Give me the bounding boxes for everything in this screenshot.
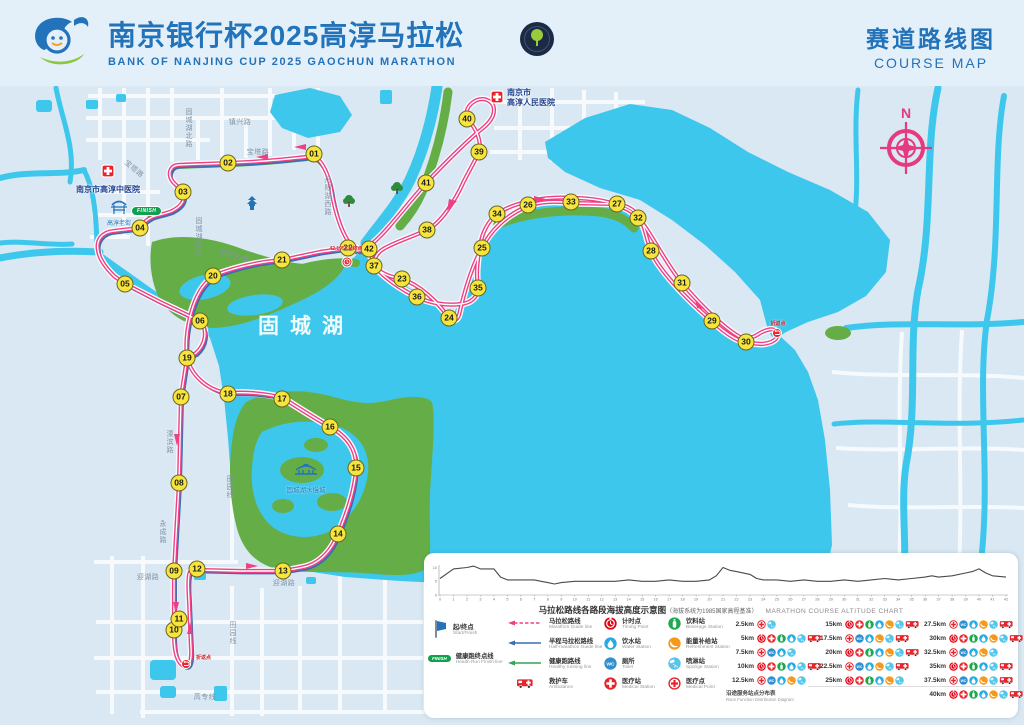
toilet-icon: WC [855,662,864,671]
svg-text:WC: WC [857,636,863,640]
beverage-icon [668,617,681,630]
medical-icon [855,676,864,685]
station-row-32.5km: 32.5kmWC [910,645,1023,659]
course-map-title-cn: 赛道路线图 [866,20,996,54]
medical-icon [767,662,776,671]
sponge-icon [999,634,1008,643]
legend-item-water: 饮水站Water Station [604,633,655,653]
legend-item-medicalpoint: 医疗点Medical Point [668,673,730,693]
refreshment-icon [668,637,681,650]
station-row-12.5km: 12.5kmWC [724,673,821,687]
health-line-swatch [507,659,543,667]
svg-text:WC: WC [961,622,967,626]
water-icon [777,676,786,685]
station-row-40km: 40km [910,687,1023,701]
medical-icon [855,620,864,629]
marathon-line-swatch [507,619,543,627]
half-line-swatch [507,639,543,647]
water-icon [979,634,988,643]
medicalpoint-icon [845,634,854,643]
beverage-icon [969,690,978,699]
old-street-label: 高淳老街 [96,218,142,227]
health-run-finish-pill: FINISH [131,206,162,216]
health-finish-label-en: Health Run Finish line [456,660,503,665]
toilet-icon: WC [959,648,968,657]
water-icon [969,676,978,685]
sponge-icon [999,690,1008,699]
water-icon [875,676,884,685]
compass-icon: N [880,105,932,174]
medical-icon [855,648,864,657]
legend-item-beverage: 饮料站Beverage Station [668,613,730,633]
medicalpoint-icon [949,620,958,629]
event-logo-icon [26,10,104,70]
hospital-cross-icon [102,165,114,177]
water-icon [787,662,796,671]
ambulance-icon [999,662,1013,671]
turnaround-icon [182,660,191,669]
legend-health-finish: FINISH 健康跑终点线 Health Run Finish line [428,651,503,665]
archway-icon [111,202,127,215]
legend-line-ambulance: 救护车Ambulance [506,673,602,693]
sponge-icon [989,676,998,685]
ambulance-icon [999,676,1013,685]
sponge-icon [885,634,894,643]
header: 南京银行杯2025高淳马拉松 BANK OF NANJING CUP 2025 … [0,0,1024,86]
turnaround-label-east: 折返点 [753,320,803,327]
station-row-27.5km: 27.5kmWC [910,617,1023,631]
station-divider [808,686,1010,687]
refreshment-icon [885,676,894,685]
station-note-en: Race Function Distribution Diagram [726,697,794,702]
toilet-icon: WC [604,657,617,670]
finish-timing-icon [342,257,352,267]
lake-name-label: 固城湖 [258,310,354,340]
medical-icon [604,677,617,690]
legend-icons-col1: 计时点Timing Point饮水站Water StationWC厕所Toile… [604,613,655,693]
refreshment-icon [979,620,988,629]
water-icon [787,634,796,643]
toilet-icon: WC [767,648,776,657]
sponge-icon [989,648,998,657]
svg-text:WC: WC [769,650,775,654]
water-icon [969,620,978,629]
course-map-title-en: COURSE MAP [866,55,996,71]
ambulance-icon [999,620,1013,629]
course-map-poster: N 01020304050607080910111213141516171819… [0,0,1024,725]
legend-line-marathon: 马拉松路线Marathon Guide line [506,613,602,633]
hospital-people-line2: 高淳人民医院 [507,98,555,107]
refreshment-icon [979,676,988,685]
hospital-people-label: 南京市 高淳人民医院 [507,88,587,107]
svg-text:0: 0 [435,593,437,597]
station-column-2: 15km17.5kmWC20km22.5kmWC25km [808,617,919,687]
turnaround-icon [773,329,782,338]
water-icon [969,648,978,657]
water-icon [865,634,874,643]
beverage-icon [865,676,874,685]
tree-icon [343,195,355,207]
beverage-icon [969,634,978,643]
legend-item-toilet: WC厕所Toilet [604,653,655,673]
medicalpoint-icon [757,648,766,657]
toilet-icon: WC [767,676,776,685]
legend-start-finish: 起/终点 Start/Finish [432,619,477,639]
sponge-icon [668,657,681,670]
compass-north-label: N [901,105,911,121]
toilet-icon: WC [959,676,968,685]
station-table-note: 沿途服务站点分布表 Race Function Distribution Dia… [726,689,794,702]
timing-icon [757,662,766,671]
medical-icon [767,634,776,643]
refreshment-icon [989,690,998,699]
north-pond [270,88,352,138]
timing-icon [845,620,854,629]
station-row-35km: 35km [910,659,1023,673]
medical-icon [959,662,968,671]
station-row-5km: 5km [724,631,821,645]
svg-text:WC: WC [961,650,967,654]
svg-text:WC: WC [961,678,967,682]
ambulance-icon [895,634,909,643]
water-icon [604,637,617,650]
info-panel: 0510012345678910111213141516171819202122… [424,553,1018,718]
start-finish-label-cn: 起/终点 [453,622,477,631]
medicalpoint-icon [757,676,766,685]
sponge-icon [797,676,806,685]
timing-icon [757,634,766,643]
legend-item-refreshment: 能量补给站Refreshment Station [668,633,730,653]
station-column-1: 2.5km5km7.5kmWC10km12.5kmWC [724,617,821,687]
svg-text:WC: WC [857,664,863,668]
legend-line-health: 健康跑路线Healthy running line [506,653,602,673]
event-title-en: BANK OF NANJING CUP 2025 GAOCHUN MARATHO… [108,56,464,68]
hospital-people-line1: 南京市 [507,88,531,97]
refreshment-icon [787,676,796,685]
legend-line-half: 半程马拉松路线Half-marathon Guide line [506,633,602,653]
station-row-10km: 10km [724,659,821,673]
medicalpoint-icon [668,677,681,690]
medical-icon [959,634,968,643]
sponge-icon [767,620,776,629]
timing-icon [949,690,958,699]
health-finish-label-cn: 健康跑终点线 [456,651,503,660]
toilet-icon: WC [855,634,864,643]
refreshment-icon [979,648,988,657]
station-row-30km: 30km [910,631,1023,645]
medicalpoint-icon [757,620,766,629]
timing-icon [845,676,854,685]
ambulance-icon [1009,690,1023,699]
chart-title-en: MARATHON COURSE ALTITUDE CHART [766,608,904,615]
station-row-25km: 25km [808,673,919,687]
station-column-3: 27.5kmWC30km32.5kmWC35km37.5kmWC40km [910,617,1023,701]
station-row-22.5km: 22.5kmWC [808,659,919,673]
water-icon [777,648,786,657]
beverage-icon [865,620,874,629]
ambulance-icon [1009,634,1023,643]
sponge-icon [989,620,998,629]
svg-text:WC: WC [769,678,775,682]
medical-icon [959,690,968,699]
sponge-icon [787,648,796,657]
legend-item-medical: 医疗站Medical Station [604,673,655,693]
health-finish-pill: FINISH [428,655,451,662]
svg-text:WC: WC [606,661,615,667]
turnaround-label-south: 折返点 [196,654,236,661]
legend-lines: 马拉松路线Marathon Guide line半程马拉松路线Half-mara… [506,613,602,693]
timing-icon [845,648,854,657]
water-icon [865,662,874,671]
station-row-17.5km: 17.5kmWC [808,631,919,645]
beverage-icon [969,662,978,671]
refreshment-icon [989,634,998,643]
timing-icon [949,634,958,643]
toilet-icon: WC [959,620,968,629]
sponge-icon [797,662,806,671]
sponge-icon [895,648,904,657]
sponge-icon [895,676,904,685]
timing-icon [604,617,617,630]
station-row-7.5km: 7.5kmWC [724,645,821,659]
refreshment-icon [875,634,884,643]
refreshment-icon [885,648,894,657]
ambulance-icon [516,678,534,689]
legend-item-sponge: 喷淋站Sponge Station [668,653,730,673]
elevation-chart: 0510012345678910111213141516171819202122… [430,557,1012,601]
pagoda-icon [247,196,257,210]
beverage-icon [777,662,786,671]
beverage-icon [777,634,786,643]
station-row-15km: 15km [808,617,919,631]
ambulance-icon [895,662,909,671]
sponge-icon [797,634,806,643]
start-finish-label-en: Start/Finish [453,631,477,636]
start-finish-flag-icon [432,619,448,639]
legend-item-timing: 计时点Timing Point [604,613,655,633]
water-icon [979,662,988,671]
water-town-label: 固城湖水慢城 [272,484,340,494]
station-row-20km: 20km [808,645,919,659]
medicalpoint-icon [845,662,854,671]
svg-text:5: 5 [435,580,437,584]
water-icon [875,620,884,629]
water-icon [875,648,884,657]
medicalpoint-icon [949,676,958,685]
water-icon [979,690,988,699]
event-title-cn: 南京银行杯2025高淳马拉松 [108,14,464,54]
refreshment-icon [885,620,894,629]
hospital-cross-icon [491,91,503,103]
medicalpoint-icon [949,648,958,657]
sponge-icon [885,662,894,671]
finish-point-label: 42.195KM终点 [314,245,378,252]
certification-badge-icon [518,20,556,58]
station-note-cn: 沿途服务站点分布表 [726,689,794,697]
hospital-tcm-label: 南京市高淳中医院 [58,184,158,195]
legend-icons-col2: 饮料站Beverage Station能量补给站Refreshment Stat… [668,613,730,693]
sponge-icon [989,662,998,671]
sponge-icon [895,620,904,629]
refreshment-icon [875,662,884,671]
station-row-37.5km: 37.5kmWC [910,673,1023,687]
beverage-icon [865,648,874,657]
svg-text:10: 10 [433,566,437,570]
station-row-2.5km: 2.5km [724,617,821,631]
timing-icon [949,662,958,671]
